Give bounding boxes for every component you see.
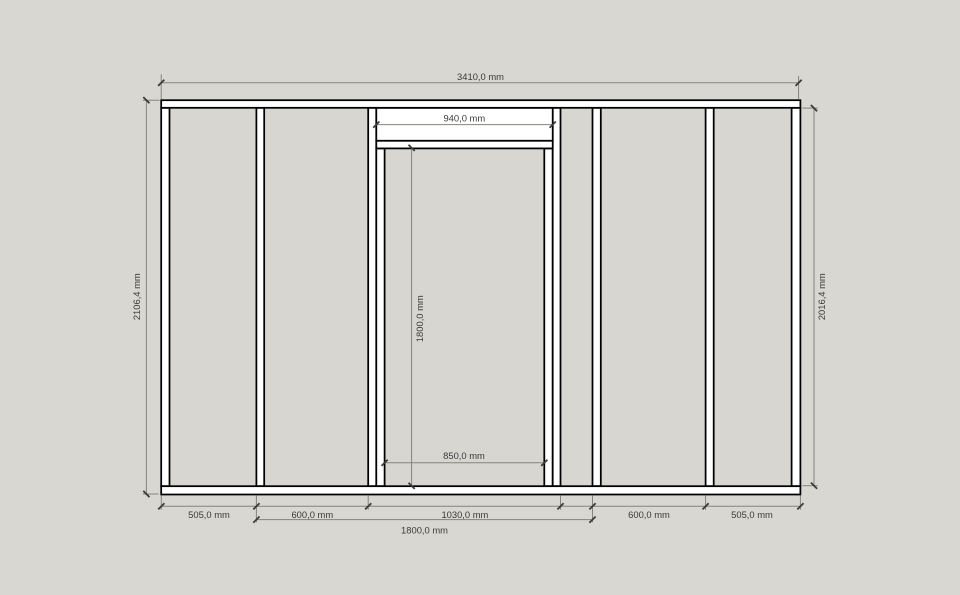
svg-text:1030,0 mm: 1030,0 mm (441, 509, 488, 520)
svg-text:1800,0 mm: 1800,0 mm (401, 524, 448, 535)
svg-text:940,0 mm: 940,0 mm (443, 113, 485, 124)
svg-text:505,0 mm: 505,0 mm (188, 509, 230, 520)
svg-text:2106,4 mm: 2106,4 mm (131, 273, 142, 320)
svg-text:600,0 mm: 600,0 mm (628, 509, 670, 520)
svg-text:2016,4 mm: 2016,4 mm (816, 273, 827, 320)
svg-text:505,0 mm: 505,0 mm (731, 509, 773, 520)
svg-text:3410,0 mm: 3410,0 mm (457, 71, 504, 82)
svg-text:850,0 mm: 850,0 mm (443, 450, 485, 461)
svg-text:1800,0 mm: 1800,0 mm (414, 295, 425, 342)
svg-text:600,0 mm: 600,0 mm (291, 509, 333, 520)
